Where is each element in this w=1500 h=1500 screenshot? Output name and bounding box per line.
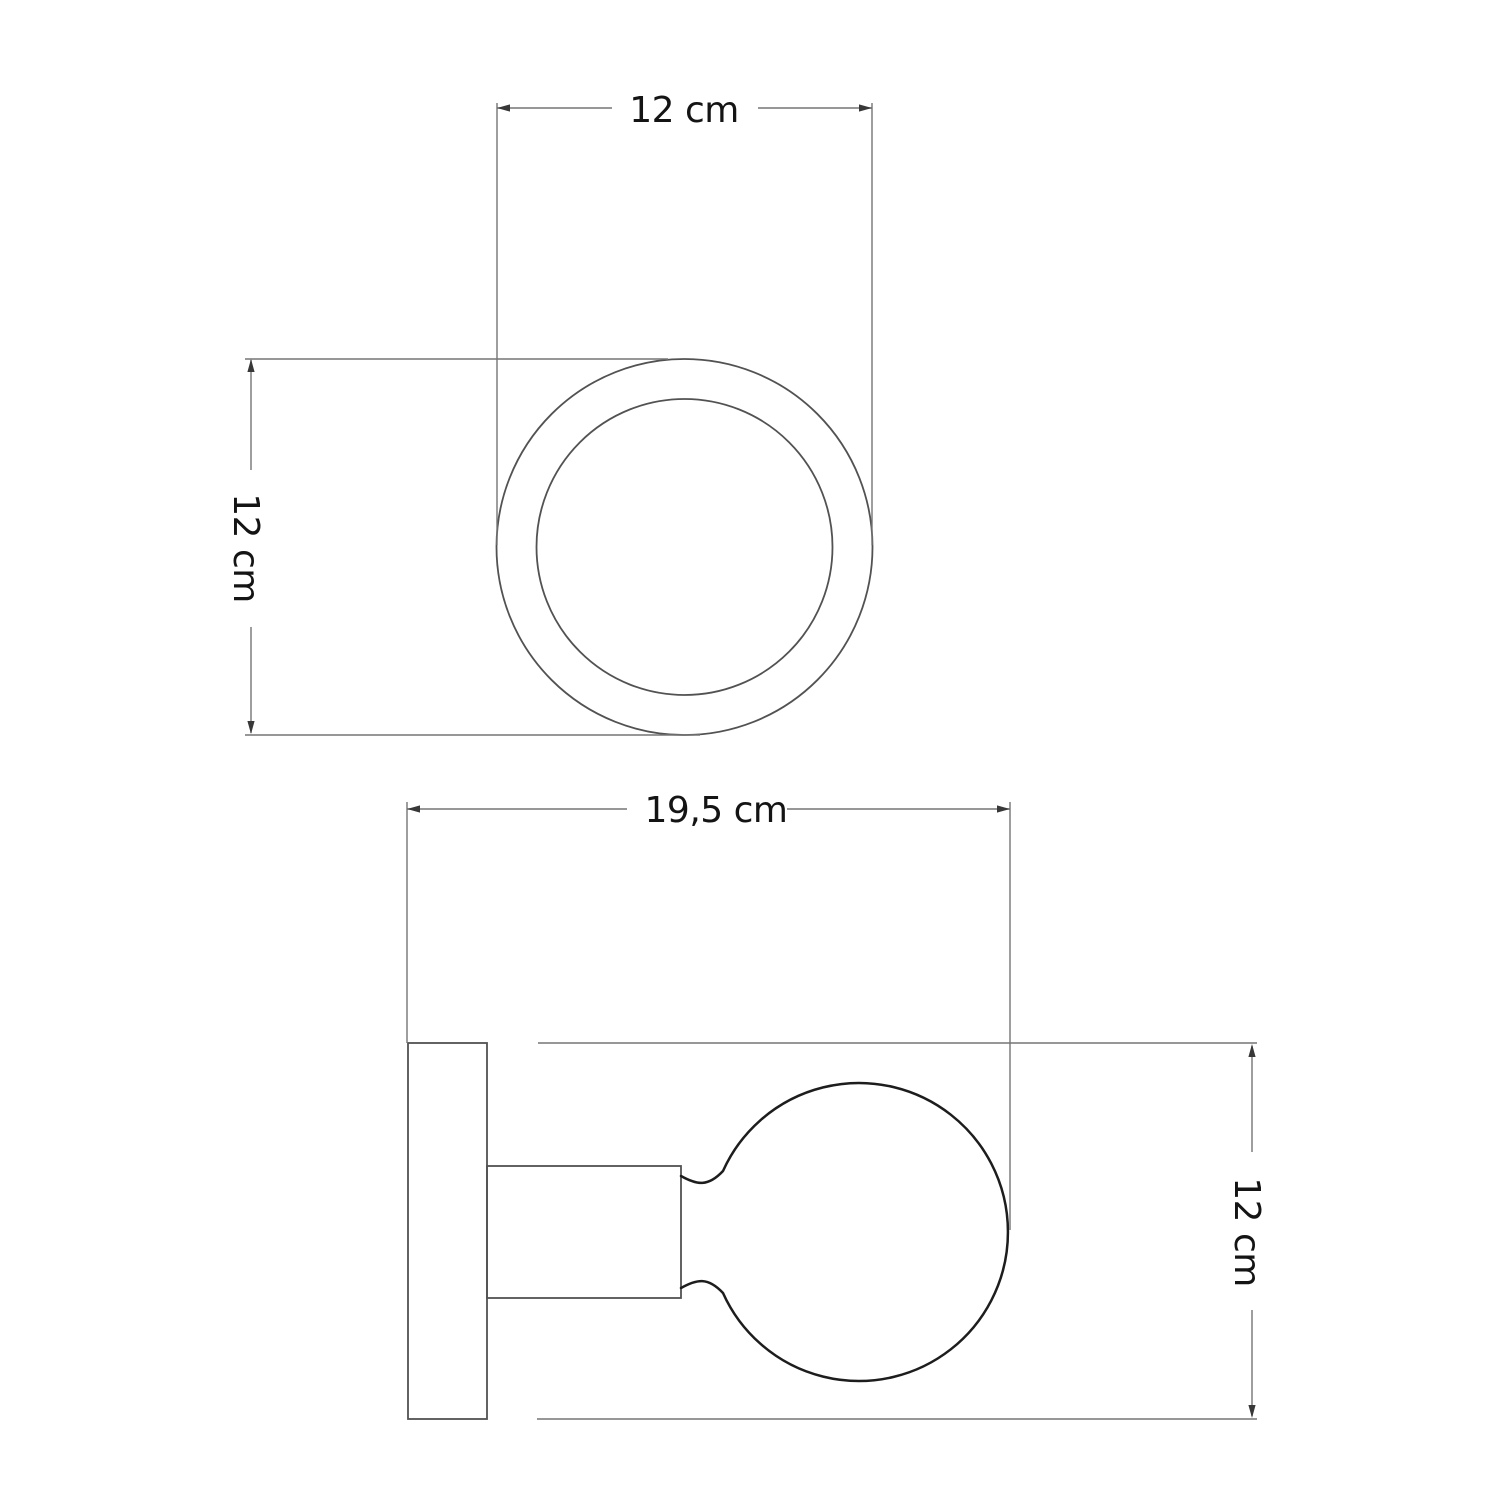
wall-plate [408, 1043, 487, 1419]
side-view: 19,5 cm 12 cm [407, 790, 1267, 1419]
arrowhead-right-icon [997, 805, 1010, 812]
arrowhead-down-icon [1248, 1405, 1255, 1418]
top-view: 12 cm 12 cm [225, 90, 873, 735]
side-depth-dimension: 19,5 cm [407, 790, 1010, 1230]
arrowhead-right-icon [859, 104, 872, 111]
top-view-outer-circle [497, 359, 873, 735]
top-width-label: 12 cm [629, 90, 739, 131]
top-view-inner-circle [537, 399, 833, 695]
top-height-dimension: 12 cm [225, 359, 700, 735]
arrowhead-up-icon [247, 359, 254, 372]
top-height-label: 12 cm [225, 493, 266, 603]
side-height-dimension: 12 cm [537, 1043, 1267, 1419]
drawing-page: 12 cm 12 cm [0, 0, 1500, 1500]
technical-drawing-canvas: 12 cm 12 cm [0, 0, 1500, 1500]
lamp-holder [487, 1166, 681, 1298]
arrowhead-up-icon [1248, 1044, 1255, 1057]
side-height-label: 12 cm [1226, 1177, 1267, 1287]
arrowhead-left-icon [407, 805, 420, 812]
arrowhead-down-icon [247, 721, 254, 734]
bulb-outline [681, 1083, 1008, 1381]
arrowhead-left-icon [497, 104, 510, 111]
side-depth-label: 19,5 cm [645, 790, 788, 831]
